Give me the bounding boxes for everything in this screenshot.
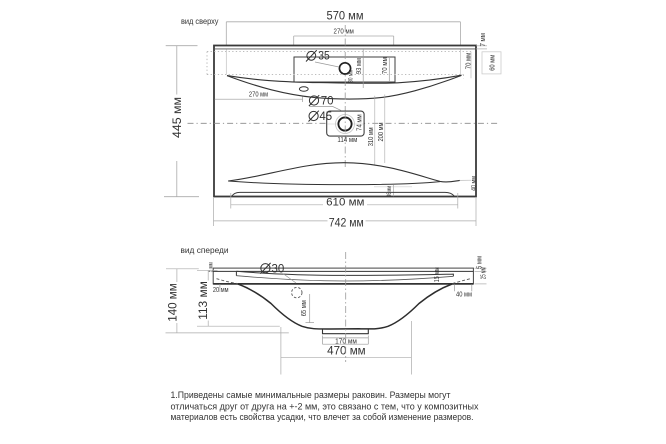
svg-text:вид спереди: вид спереди [181,245,229,255]
svg-text:60 мм: 60 мм [489,55,496,71]
svg-text:742 мм: 742 мм [329,217,364,229]
svg-text:270 мм: 270 мм [334,29,354,36]
svg-text:20 мм: 20 мм [213,287,229,294]
svg-text:15 мм: 15 мм [434,267,441,282]
svg-text:310 мм: 310 мм [368,127,375,146]
svg-text:30 мм: 30 мм [349,70,355,83]
svg-text:материалов есть свойства усадк: материалов есть свойства усадки, что вле… [171,412,474,422]
svg-text:93 мм: 93 мм [356,58,363,74]
svg-text:270 мм: 270 мм [249,92,268,99]
svg-text:200 мм: 200 мм [378,122,385,141]
svg-text:5 мм: 5 мм [209,262,215,272]
svg-text:470 мм: 470 мм [327,344,366,358]
svg-text:40 мм: 40 мм [471,176,478,191]
svg-text:35: 35 [318,51,330,63]
svg-text:36 мм: 36 мм [387,186,393,197]
svg-text:40 мм: 40 мм [456,292,472,299]
svg-text:1.Приведены самые минимальные: 1.Приведены самые минимальные размеры ра… [171,390,451,400]
svg-text:вид сверху: вид сверху [181,16,219,26]
svg-text:отличаться друг от друга на +-: отличаться друг от друга на +-2 мм, это … [171,401,479,411]
svg-text:74 мм: 74 мм [356,114,363,131]
svg-text:7 мм: 7 мм [480,33,487,47]
svg-text:140 мм: 140 мм [165,283,179,322]
svg-text:45: 45 [319,111,332,123]
svg-text:30: 30 [272,264,285,276]
svg-text:610 мм: 610 мм [326,196,364,208]
svg-text:70 мм: 70 мм [382,57,389,74]
svg-text:570 мм: 570 мм [327,10,364,22]
svg-text:70: 70 [321,96,334,108]
svg-text:25 мм: 25 мм [481,267,488,279]
svg-text:113 мм: 113 мм [196,281,210,320]
svg-text:114 мм: 114 мм [337,135,357,144]
svg-text:5 мм: 5 мм [477,256,484,269]
svg-text:70 мм: 70 мм [465,53,472,70]
svg-text:65 мм: 65 мм [301,300,308,316]
svg-text:445 мм: 445 мм [172,97,184,138]
